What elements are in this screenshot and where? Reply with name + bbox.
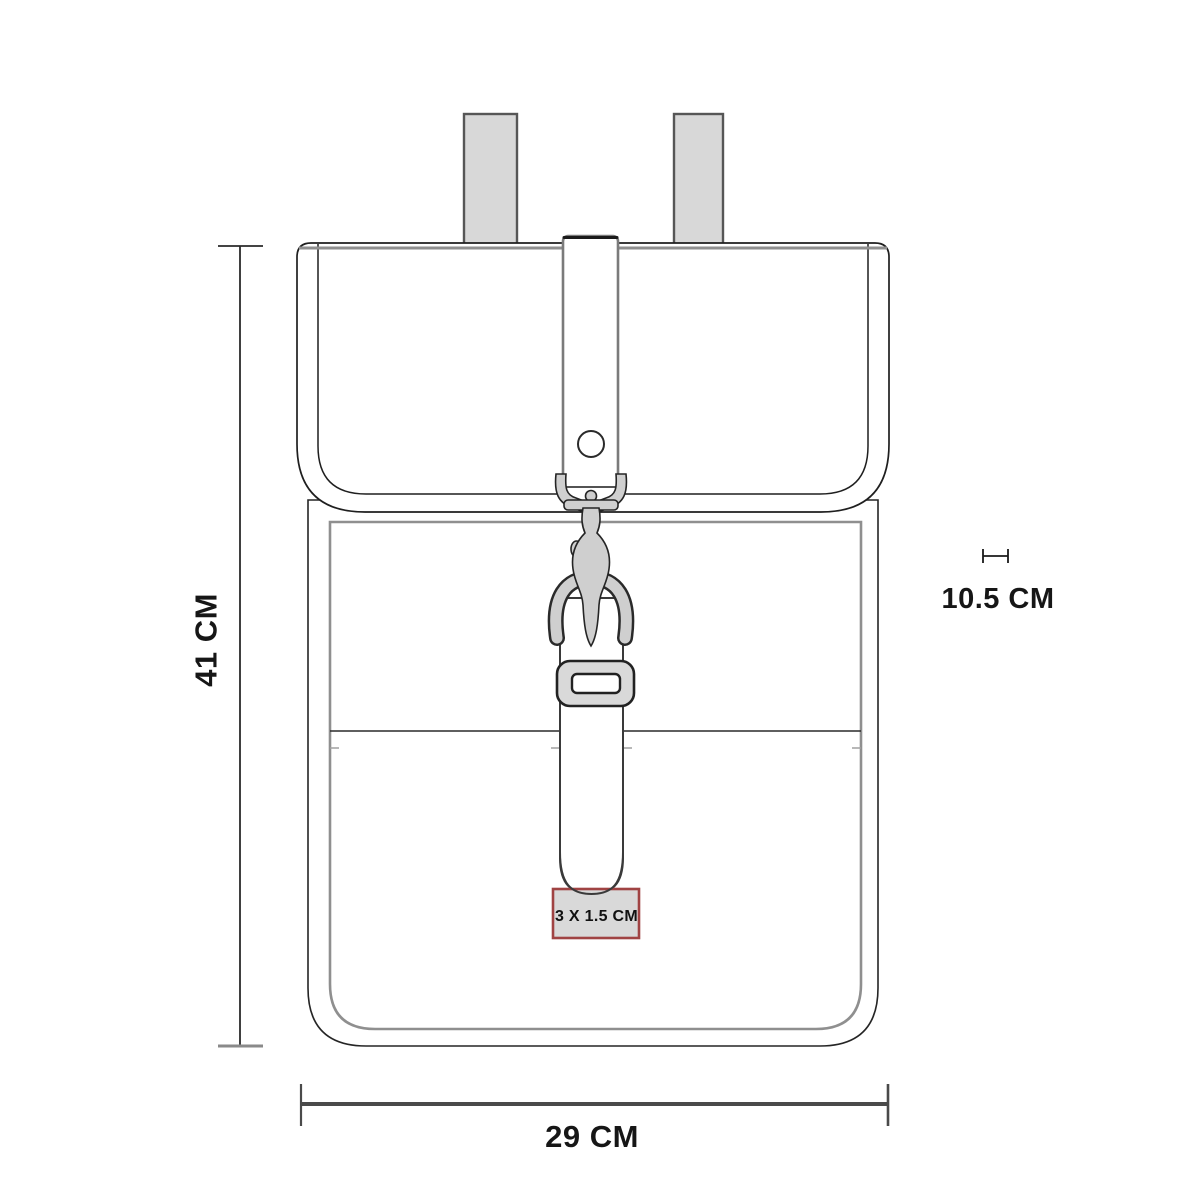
top-straps	[464, 114, 723, 252]
height-label: 41 CM	[189, 593, 224, 687]
adjuster-buckle-icon	[557, 661, 634, 706]
width-dimension: 29 CM	[301, 1084, 888, 1154]
right-strap	[674, 114, 723, 252]
left-strap	[464, 114, 517, 252]
backpack-line-drawing: 3 X 1.5 CM 41 CM 29 CM 10.5 CM	[0, 0, 1200, 1200]
branding-size-label: 3 X 1.5 CM	[555, 908, 638, 925]
closure-strap-upper	[563, 236, 618, 502]
dimension-diagram: 3 X 1.5 CM 41 CM 29 CM 10.5 CM	[0, 0, 1200, 1200]
depth-dimension: 10.5 CM	[941, 549, 1054, 615]
upper-strap	[563, 236, 618, 502]
buckle-window	[572, 674, 620, 693]
height-dimension: 41 CM	[189, 246, 264, 1046]
depth-label: 10.5 CM	[941, 583, 1054, 615]
width-label: 29 CM	[545, 1119, 639, 1154]
snap-button-icon	[578, 431, 604, 457]
